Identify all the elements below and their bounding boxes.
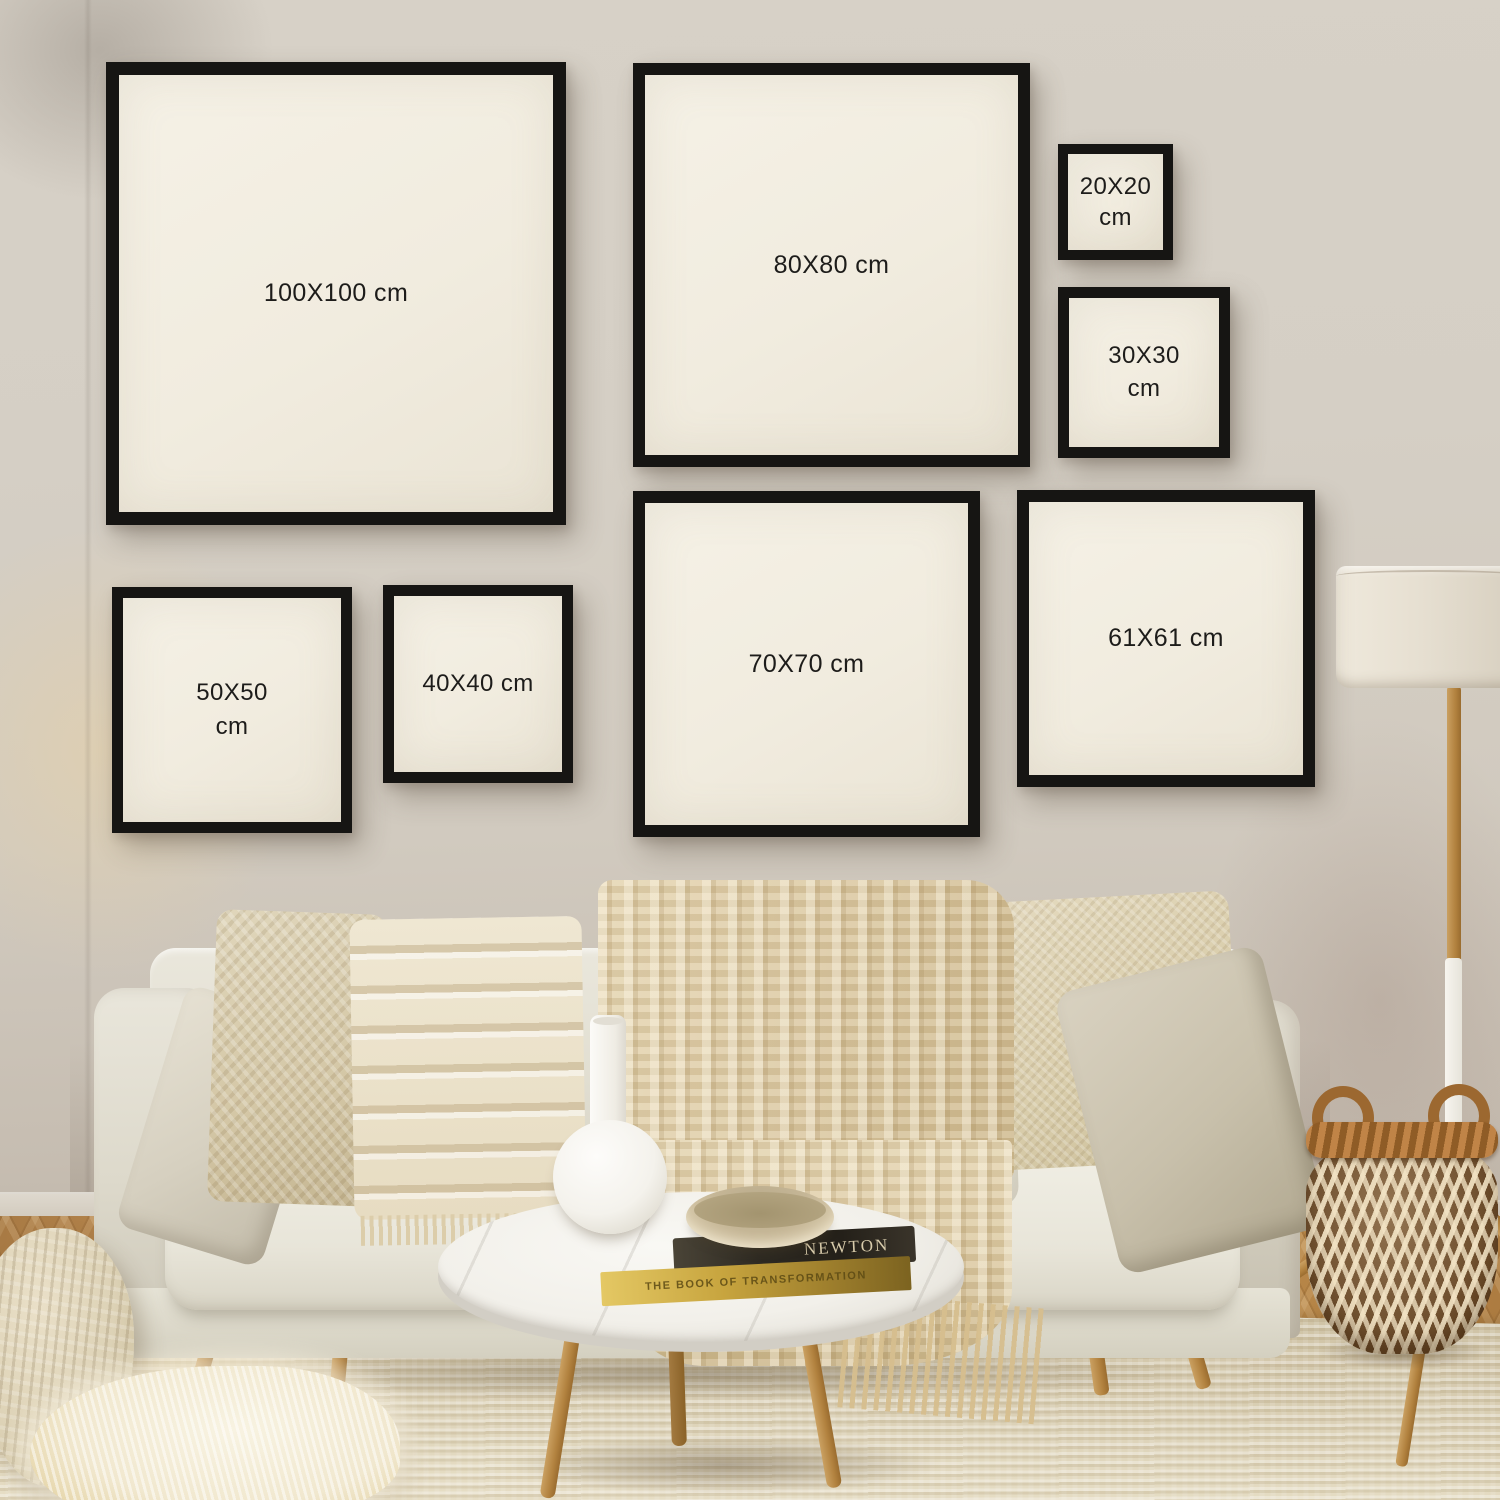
- knit-throw-over-backrest: [598, 880, 1014, 1180]
- size-text: 40X40 cm: [422, 667, 533, 702]
- frame-size-label: 40X40 cm: [422, 667, 533, 702]
- size-text: 100X100 cm: [264, 275, 408, 311]
- yellow-book-spine-text: THE BOOK OF TRANSFORMATION: [645, 1269, 867, 1293]
- living-room-frame-size-guide: 100X100 cm 80X80 cm 20X20 cm 30X30 cm 50…: [0, 0, 1500, 1500]
- frame-size-label: 61X61 cm: [1108, 620, 1224, 656]
- floor-lamp-pole-upper: [1447, 686, 1461, 968]
- pillow-boho-textured: [349, 916, 586, 1220]
- frame-70x70: 70X70 cm: [633, 491, 980, 837]
- white-vase-body: [553, 1120, 667, 1234]
- frame-size-label: 20X20 cm: [1080, 171, 1151, 233]
- size-text: 30X30: [1108, 340, 1179, 372]
- frame-30x30: 30X30 cm: [1058, 287, 1230, 458]
- wall-corner-edge: [84, 0, 92, 1215]
- size-text-line2: cm: [196, 710, 267, 744]
- size-text: 50X50: [196, 676, 267, 710]
- size-text-line2: cm: [1108, 373, 1179, 405]
- size-text: 20X20: [1080, 171, 1151, 202]
- frame-size-label: 70X70 cm: [749, 646, 865, 682]
- size-text-line2: cm: [1080, 202, 1151, 233]
- frame-size-label: 80X80 cm: [774, 247, 890, 283]
- frame-100x100: 100X100 cm: [106, 62, 566, 525]
- frame-size-label: 30X30 cm: [1108, 340, 1179, 405]
- frame-80x80: 80X80 cm: [633, 63, 1030, 467]
- ceramic-bowl: [686, 1186, 834, 1248]
- basket-rim: [1306, 1122, 1498, 1158]
- frame-20x20: 20X20 cm: [1058, 144, 1173, 260]
- frame-size-label: 50X50 cm: [196, 676, 267, 743]
- dark-book-title: NEWTON: [803, 1235, 889, 1259]
- frame-50x50: 50X50 cm: [112, 587, 352, 833]
- frame-61x61: 61X61 cm: [1017, 490, 1315, 787]
- floor-lamp-shade: [1336, 566, 1500, 688]
- frame-size-label: 100X100 cm: [264, 275, 408, 311]
- size-text: 70X70 cm: [749, 646, 865, 682]
- coffee-table-shadow: [455, 1428, 995, 1500]
- size-text: 80X80 cm: [774, 247, 890, 283]
- frame-40x40: 40X40 cm: [383, 585, 573, 783]
- woven-belly-basket: [1306, 1136, 1498, 1354]
- size-text: 61X61 cm: [1108, 620, 1224, 656]
